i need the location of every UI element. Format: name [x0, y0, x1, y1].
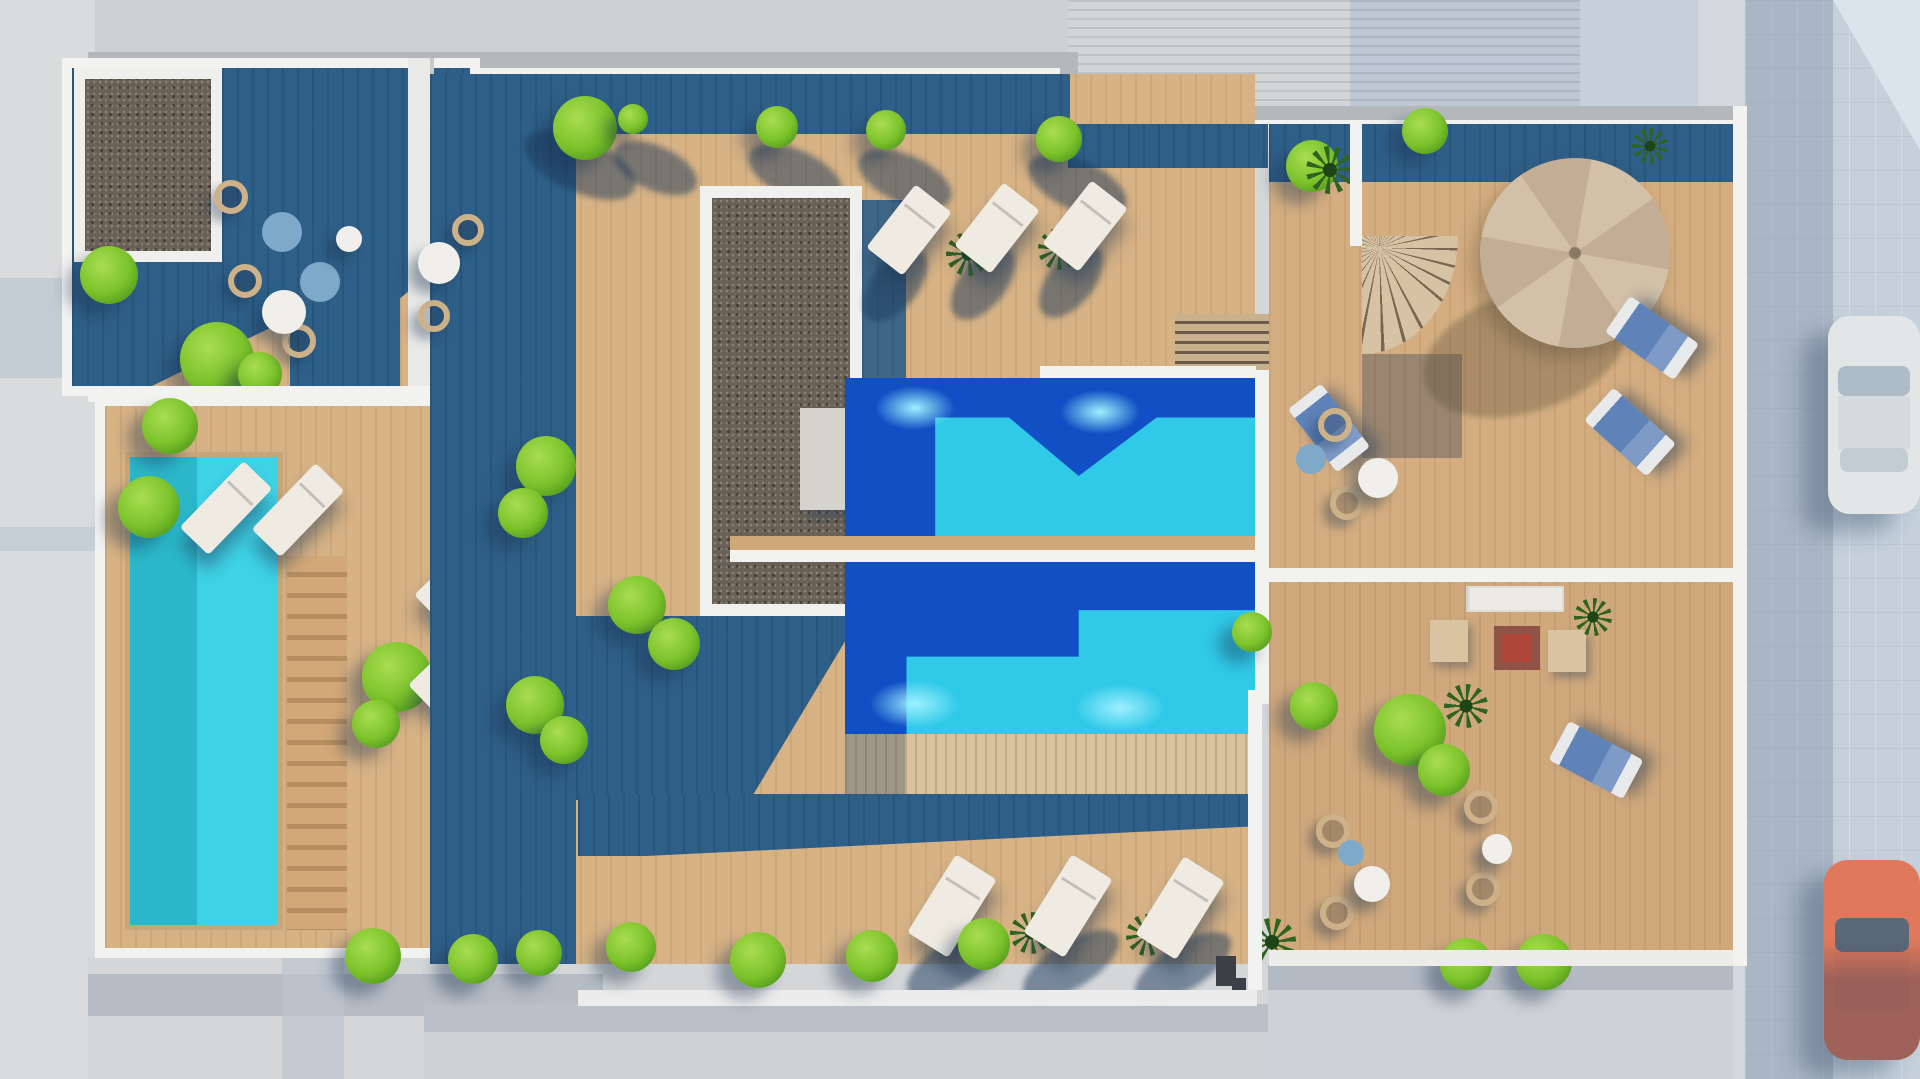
chair-cushion — [262, 212, 302, 252]
round-table — [1354, 866, 1390, 902]
bush — [866, 110, 906, 150]
wicker-chair — [1330, 486, 1364, 520]
wicker-chair — [228, 264, 262, 298]
bush — [516, 930, 562, 976]
bush — [606, 922, 656, 972]
bush — [448, 934, 498, 984]
round-table — [418, 242, 460, 284]
lounge-sofa — [1466, 586, 1564, 612]
white-car-roof — [1838, 396, 1910, 450]
wall-pools-right — [1255, 370, 1269, 704]
bush — [1036, 116, 1082, 162]
bush — [516, 436, 576, 496]
bush — [958, 918, 1010, 970]
tiled-roof-blue-part — [1350, 0, 1580, 110]
left-terrace-stairs — [287, 556, 347, 930]
underwater-light — [870, 680, 960, 728]
parapet-right-edge — [1733, 106, 1747, 966]
bush — [118, 476, 180, 538]
bush — [345, 928, 401, 984]
chair-cushion — [1296, 444, 1326, 474]
pool-plank-wall — [845, 734, 1255, 794]
bush — [648, 618, 700, 670]
terrace-bottom-right-parapet — [1269, 950, 1733, 966]
orange-car-shadow-overlay — [1824, 860, 1920, 1060]
wicker-chair — [1320, 896, 1354, 930]
upper-pool-railing — [1040, 366, 1256, 378]
wicker-chair — [1466, 872, 1500, 906]
wall-lower-terrace-E — [1248, 690, 1262, 990]
underwater-light — [875, 386, 955, 430]
wicker-chair — [452, 214, 484, 246]
wicker-chair — [1318, 408, 1352, 442]
bush — [756, 106, 798, 148]
palm-plant — [1444, 684, 1488, 728]
lower-terrace-parapet — [578, 990, 1257, 1006]
bush — [730, 932, 786, 988]
parapet-divider-DE — [1255, 568, 1733, 582]
white-car-rear-window — [1840, 448, 1908, 472]
round-table — [262, 290, 306, 334]
coffee-table-top — [1502, 634, 1532, 662]
chair-cushion — [300, 262, 340, 302]
bush — [142, 398, 198, 454]
pool-divider-railing — [730, 550, 1255, 562]
bush — [1290, 682, 1338, 730]
round-table — [1358, 458, 1398, 498]
chimney-vent-foot — [1232, 978, 1246, 990]
central-deck-shadow-left — [430, 110, 576, 964]
orange-car — [1824, 860, 1920, 1060]
upper-pool — [845, 378, 1255, 536]
pool-equipment-box — [800, 408, 846, 510]
bush — [80, 246, 138, 304]
palm-plant — [1632, 128, 1668, 164]
render-canvas — [0, 0, 1920, 1079]
wicker-chair — [418, 300, 450, 332]
lower-pool — [845, 562, 1255, 734]
white-car — [1828, 316, 1920, 514]
wicker-chair — [214, 180, 248, 214]
central-deck-shadow-top-right — [1068, 124, 1268, 168]
bush — [1232, 612, 1272, 652]
bush — [352, 700, 400, 748]
bush — [498, 488, 548, 538]
bush — [553, 96, 617, 160]
bush — [1418, 744, 1470, 796]
street-bottom-left-vertical-shadow — [282, 956, 344, 1079]
white-car-windshield — [1838, 366, 1910, 396]
bush — [846, 930, 898, 982]
underwater-light — [1060, 390, 1140, 434]
bush — [1402, 108, 1448, 154]
lounge-pot — [1548, 630, 1586, 672]
chair-cushion — [1338, 840, 1364, 866]
bush — [540, 716, 588, 764]
stairs-to-pool — [1175, 314, 1269, 374]
street-bottom-right-shadow — [1268, 966, 1733, 990]
street-left-shadow-band2 — [0, 527, 95, 551]
bush — [618, 104, 648, 134]
round-table — [1482, 834, 1512, 864]
gravel-skylight-topleft — [74, 68, 222, 262]
round-table — [336, 226, 362, 252]
underwater-light — [1075, 684, 1165, 732]
street-right-building-shadow — [1745, 0, 1833, 1079]
pool-divider-deck — [730, 536, 1255, 550]
lounge-pot — [1430, 620, 1468, 662]
pool-plank-wall-shadow — [845, 734, 905, 794]
street-bottom-center-shadow — [424, 1004, 1269, 1032]
wicker-chair — [1464, 790, 1498, 824]
wall-spiral-stair — [1350, 124, 1362, 246]
